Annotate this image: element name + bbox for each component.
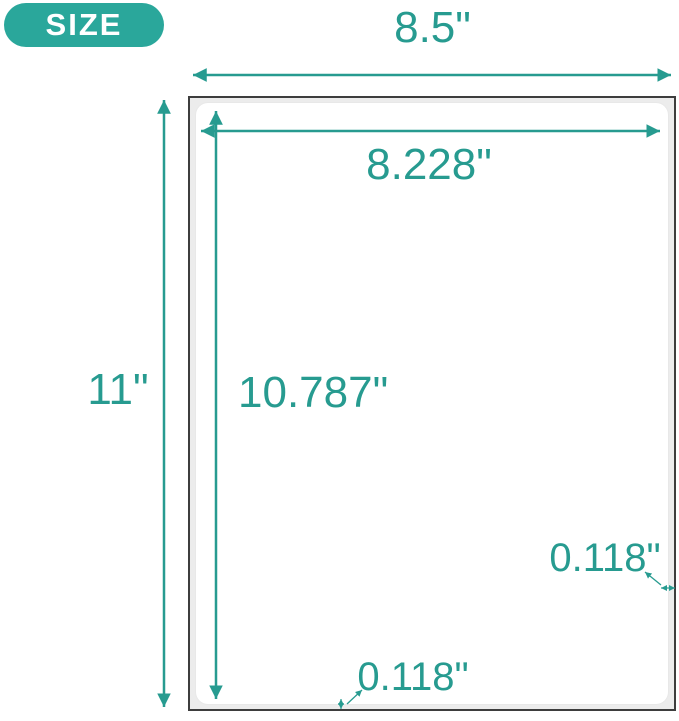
size-badge-label: SIZE — [46, 7, 123, 43]
bottom-margin-label: 0.118" — [352, 657, 474, 697]
label-height-label: 10.787" — [238, 371, 388, 415]
sheet-height-label: 11" — [82, 368, 154, 412]
right-margin-label: 0.118" — [544, 538, 666, 578]
label-width-label: 8.228" — [360, 143, 498, 187]
size-diagram: SIZE 8.5" 11" 8.228" 10.787" — [0, 0, 679, 721]
sheet-width-label: 8.5" — [390, 6, 475, 50]
size-badge: SIZE — [4, 3, 164, 47]
